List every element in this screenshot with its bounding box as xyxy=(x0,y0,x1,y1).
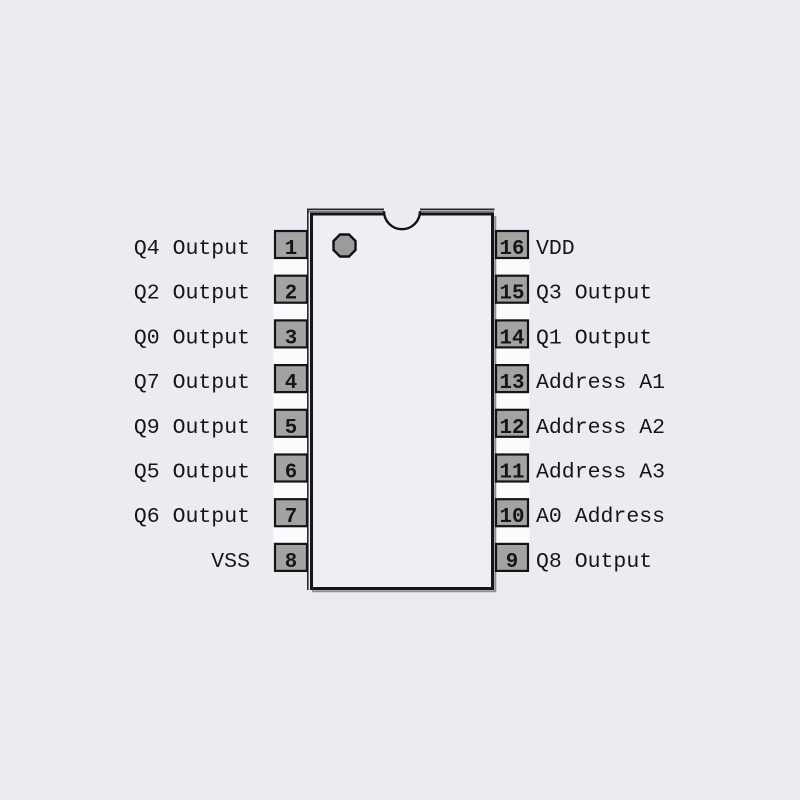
svg-text:Q8 Output: Q8 Output xyxy=(536,550,652,574)
svg-text:5: 5 xyxy=(285,417,297,440)
svg-text:Q6 Output: Q6 Output xyxy=(134,505,250,529)
svg-text:14: 14 xyxy=(500,327,525,350)
svg-text:3: 3 xyxy=(285,327,297,350)
svg-text:12: 12 xyxy=(500,417,525,440)
svg-text:1: 1 xyxy=(285,238,297,261)
svg-text:Q5 Output: Q5 Output xyxy=(134,461,250,485)
svg-text:9: 9 xyxy=(506,551,518,574)
svg-text:4: 4 xyxy=(285,372,297,395)
svg-text:Q2 Output: Q2 Output xyxy=(134,282,250,306)
svg-text:6: 6 xyxy=(285,462,297,485)
svg-text:11: 11 xyxy=(500,462,525,485)
svg-text:Address A1: Address A1 xyxy=(536,371,665,395)
svg-text:A0 Address: A0 Address xyxy=(536,505,665,529)
svg-text:Address A2: Address A2 xyxy=(536,416,665,440)
svg-text:7: 7 xyxy=(285,506,297,529)
svg-text:Q1 Output: Q1 Output xyxy=(536,326,652,350)
svg-text:Q4 Output: Q4 Output xyxy=(134,237,250,261)
svg-text:VDD: VDD xyxy=(536,237,575,261)
svg-text:16: 16 xyxy=(500,238,525,261)
svg-text:10: 10 xyxy=(500,506,525,529)
svg-text:Q0 Output: Q0 Output xyxy=(134,326,250,350)
svg-text:Address A3: Address A3 xyxy=(536,461,665,485)
svg-text:VSS: VSS xyxy=(211,550,250,574)
svg-text:Q3 Output: Q3 Output xyxy=(536,282,652,306)
svg-text:Q9 Output: Q9 Output xyxy=(134,416,250,440)
svg-text:13: 13 xyxy=(500,372,525,395)
svg-text:8: 8 xyxy=(285,551,297,574)
svg-text:Q7 Output: Q7 Output xyxy=(134,371,250,395)
svg-text:2: 2 xyxy=(285,283,297,306)
svg-text:15: 15 xyxy=(500,283,525,306)
